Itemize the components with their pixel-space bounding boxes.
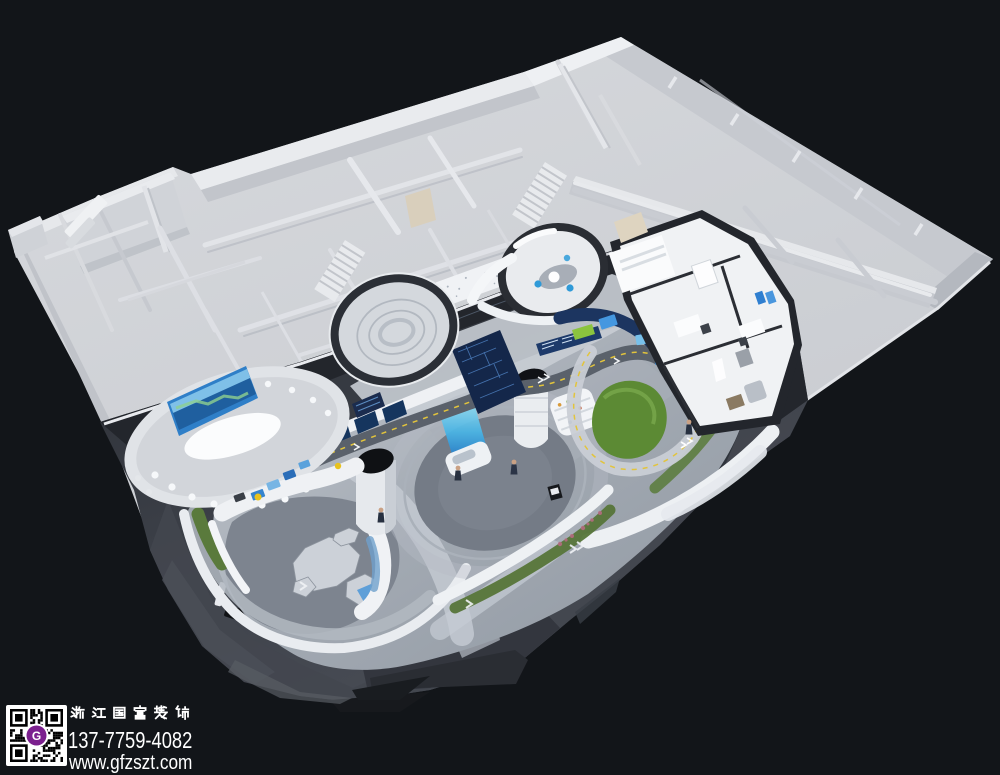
svg-text:www.gfzszt.com: www.gfzszt.com (68, 752, 192, 775)
svg-text:137-7759-4082: 137-7759-4082 (68, 728, 192, 754)
svg-text:G: G (32, 729, 41, 743)
